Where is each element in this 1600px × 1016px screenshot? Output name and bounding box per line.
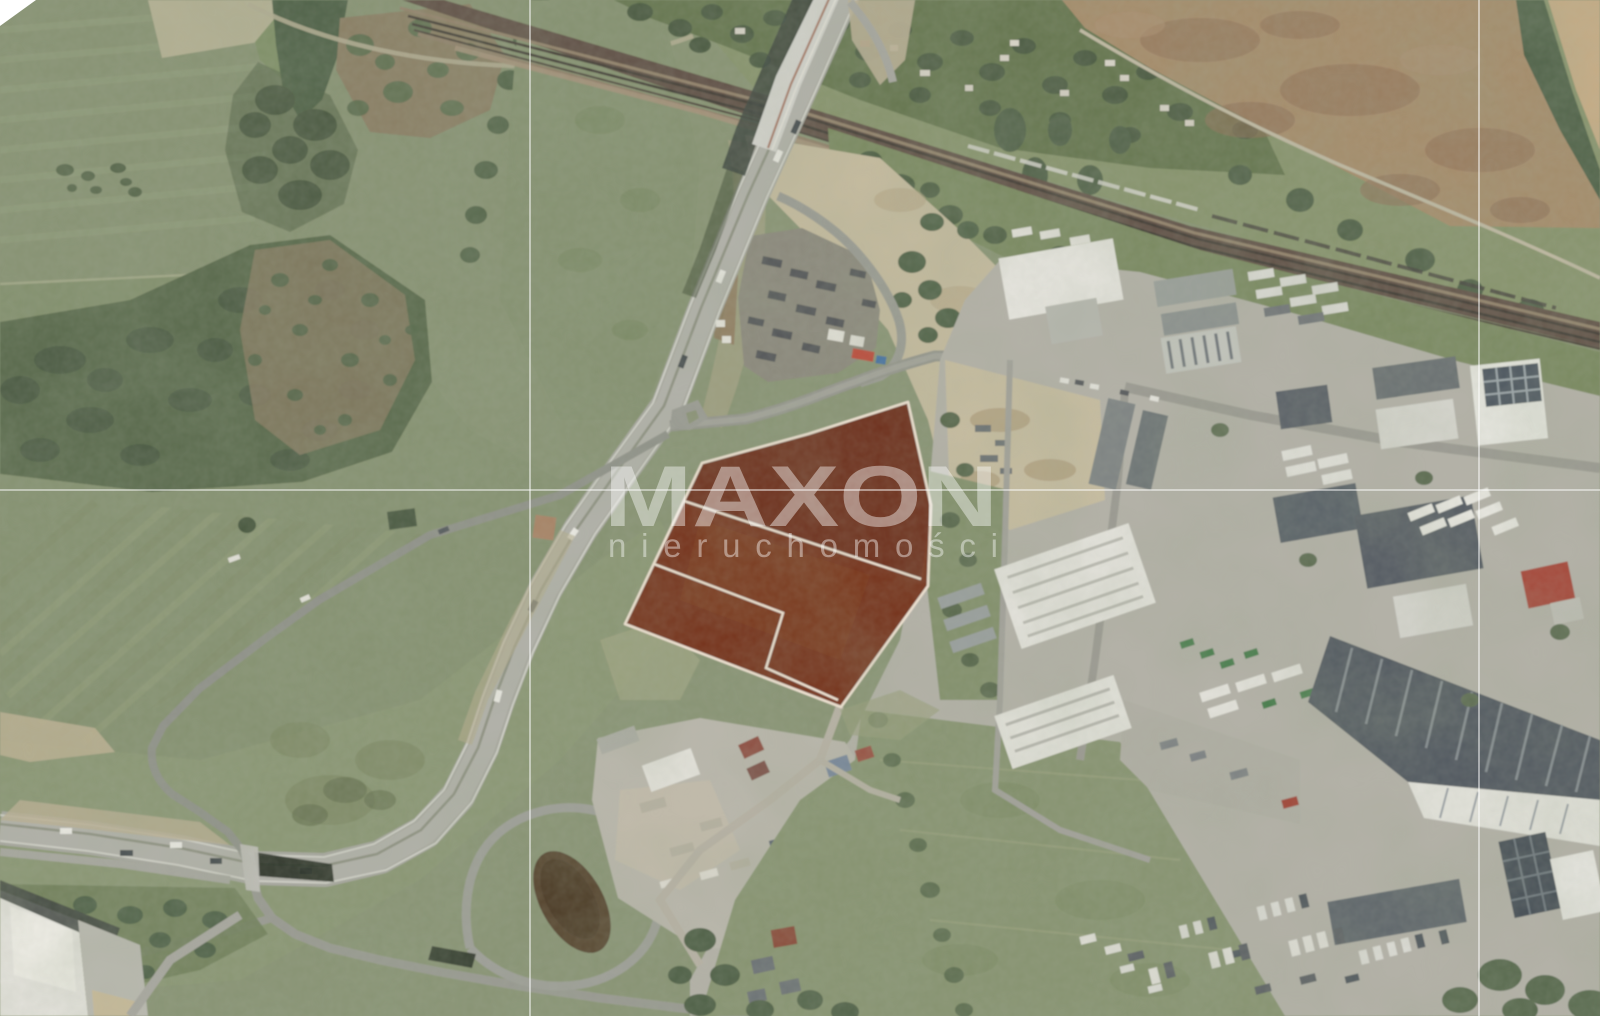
svg-text:nieruchomości: nieruchomości xyxy=(608,527,998,564)
